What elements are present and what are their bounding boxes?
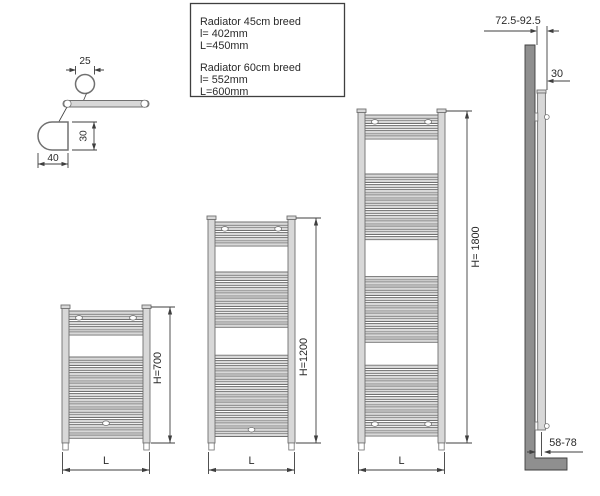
- arrowhead: [544, 450, 551, 454]
- tube: [365, 292, 439, 295]
- side-rail: [62, 308, 69, 443]
- tube: [365, 391, 439, 394]
- tube: [69, 373, 144, 376]
- height-dimension: [296, 218, 321, 443]
- tube: [365, 210, 439, 213]
- length-dimension-label: L: [398, 455, 404, 467]
- tube: [215, 392, 289, 395]
- bracket-knob-top: [544, 115, 549, 120]
- tube: [365, 329, 439, 332]
- tube: [365, 115, 439, 118]
- tube: [365, 313, 439, 316]
- tube: [365, 370, 439, 373]
- tube: [365, 190, 439, 193]
- tube: [69, 311, 144, 314]
- tube: [215, 412, 289, 415]
- mount-hole: [425, 422, 432, 427]
- height-dimension-label: H=700: [152, 352, 164, 384]
- side-tube: [538, 93, 546, 430]
- tube: [365, 136, 439, 139]
- tube: [365, 297, 439, 300]
- arrowhead: [531, 29, 538, 33]
- tube-diameter-label: 25: [79, 56, 91, 67]
- leg: [359, 443, 364, 450]
- bottom-offset-label: 58-78: [549, 437, 577, 449]
- rail-cap: [207, 216, 216, 220]
- tube: [365, 407, 439, 410]
- arrowhead: [465, 436, 469, 444]
- leader-line: [84, 94, 87, 101]
- tube: [365, 131, 439, 134]
- tube: [215, 298, 289, 301]
- arrowhead: [92, 144, 96, 151]
- tube: [215, 277, 289, 280]
- tube: [365, 381, 439, 384]
- rail-cap: [142, 305, 151, 309]
- tube: [69, 404, 144, 407]
- spec-line-6: L=600mm: [200, 86, 248, 98]
- tube: [215, 366, 289, 369]
- arrowhead: [62, 162, 69, 166]
- tube: [365, 417, 439, 420]
- bracket-height-label: 30: [79, 130, 90, 142]
- tube: [365, 205, 439, 208]
- leader-line: [59, 107, 67, 122]
- tube: [69, 357, 144, 360]
- tube: [365, 200, 439, 203]
- mount-hole: [371, 120, 378, 125]
- tube: [365, 365, 439, 368]
- tube: [365, 287, 439, 290]
- tube: [365, 282, 439, 285]
- rail-cap: [437, 109, 446, 113]
- bracket-depth-label: 40: [47, 153, 59, 164]
- tube: [69, 367, 144, 370]
- tube: [69, 383, 144, 386]
- bar-end-cap: [141, 100, 148, 107]
- drawing-canvas: Radiator 45cm breed l= 402mm L=450mm Rad…: [0, 0, 600, 496]
- height-dimension: [446, 111, 472, 443]
- tube: [215, 293, 289, 296]
- arrowhead: [92, 122, 96, 129]
- rail-cap: [357, 109, 366, 113]
- tube: [215, 324, 289, 327]
- leg: [439, 443, 444, 450]
- top-offset-dimension: [484, 26, 559, 90]
- tube: [215, 402, 289, 405]
- tube: [215, 381, 289, 384]
- tube: [69, 327, 144, 330]
- tube: [215, 397, 289, 400]
- tube: [215, 319, 289, 322]
- tube: [69, 409, 144, 412]
- tube: [69, 378, 144, 381]
- tube: [365, 428, 439, 431]
- arrowhead: [547, 29, 554, 33]
- tube: [215, 238, 289, 241]
- spec-line-4: Radiator 60cm breed: [200, 62, 301, 74]
- tube: [365, 396, 439, 399]
- radiator-h700: H=700L: [61, 305, 175, 474]
- tube: [215, 376, 289, 379]
- mount-hole: [103, 421, 110, 426]
- front-view-radiators: H=700LH=1200LH= 1800L: [61, 109, 482, 474]
- rail-cap: [287, 216, 296, 220]
- tube: [365, 303, 439, 306]
- spec-line-1: Radiator 45cm breed: [200, 16, 301, 28]
- tube: [215, 232, 289, 235]
- tube: [365, 195, 439, 198]
- leg: [289, 443, 294, 450]
- arrowhead: [314, 218, 318, 226]
- rail-cap: [61, 305, 70, 309]
- arrowhead: [168, 307, 172, 315]
- tube: [69, 321, 144, 324]
- side-view: 72.5-92.5 30 58-78: [484, 15, 583, 470]
- spec-box: Radiator 45cm breed l= 402mm L=450mm Rad…: [191, 4, 345, 99]
- tube-section-circle: [76, 75, 95, 94]
- tube: [365, 308, 439, 311]
- top-offset-label: 72.5-92.5: [495, 15, 541, 27]
- tube: [365, 231, 439, 234]
- tube: [365, 125, 439, 128]
- tube: [215, 433, 289, 436]
- mount-hole: [248, 427, 255, 432]
- mount-hole: [76, 316, 83, 321]
- arrowhead: [287, 468, 295, 472]
- tube: [215, 288, 289, 291]
- bar-end-cap: [64, 100, 71, 107]
- tube: [215, 371, 289, 374]
- length-dimension-label: L: [248, 455, 254, 467]
- radiator-technical-drawing: Radiator 45cm breed l= 402mm L=450mm Rad…: [0, 0, 600, 496]
- wall-and-floor: [525, 45, 567, 470]
- tube: [215, 243, 289, 246]
- tube: [69, 430, 144, 433]
- radiator-h1200: H=1200L: [207, 216, 321, 474]
- tube: [215, 308, 289, 311]
- arrowhead: [168, 436, 172, 444]
- tube: [365, 433, 439, 436]
- tube: [365, 184, 439, 187]
- tube: [365, 174, 439, 177]
- tube: [215, 386, 289, 389]
- tube: [365, 318, 439, 321]
- mount-hole: [275, 227, 282, 232]
- leg: [63, 443, 68, 450]
- tube: [69, 362, 144, 365]
- tube: [365, 179, 439, 182]
- tube: [365, 386, 439, 389]
- towel-bar: [63, 101, 149, 108]
- wall-bracket-top: [535, 113, 538, 121]
- mount-hole: [130, 316, 137, 321]
- tube: [69, 435, 144, 438]
- height-dimension-label: H= 1800: [470, 226, 482, 267]
- side-rail: [208, 219, 215, 443]
- tube: [365, 412, 439, 415]
- tube: [215, 282, 289, 285]
- tube: [365, 323, 439, 326]
- tube: [215, 360, 289, 363]
- tube: [365, 236, 439, 239]
- arrowhead: [314, 436, 318, 444]
- mount-hole: [425, 120, 432, 125]
- side-rail: [438, 112, 445, 443]
- tube: [215, 272, 289, 275]
- arrowhead: [142, 468, 150, 472]
- tube: [215, 303, 289, 306]
- tube: [365, 334, 439, 337]
- arrowhead: [63, 468, 71, 472]
- side-rail: [143, 308, 150, 443]
- tube: [69, 414, 144, 417]
- tube: [215, 407, 289, 410]
- leg: [209, 443, 214, 450]
- arrowhead: [359, 468, 367, 472]
- arrowhead: [437, 468, 445, 472]
- tube: [69, 393, 144, 396]
- tube: [365, 376, 439, 379]
- arrowhead: [465, 111, 469, 119]
- tube-depth-label: 30: [551, 68, 563, 80]
- wall-bracket-bottom: [535, 422, 538, 430]
- spec-line-3: L=450mm: [200, 40, 248, 52]
- side-rail: [358, 112, 365, 443]
- tube: [69, 388, 144, 391]
- bracket-profile: [38, 122, 68, 150]
- bracket-knob-bottom: [544, 424, 549, 429]
- spec-line-5: l= 552mm: [200, 74, 248, 86]
- spec-line-2: l= 402mm: [200, 28, 248, 40]
- mount-hole: [371, 422, 378, 427]
- tube: [365, 402, 439, 405]
- side-rail: [288, 219, 295, 443]
- height-dimension-label: H=1200: [298, 338, 310, 376]
- radiator-h1800: H= 1800L: [357, 109, 482, 474]
- tube: [365, 216, 439, 219]
- tube: [365, 221, 439, 224]
- tube: [215, 355, 289, 358]
- arrowhead: [38, 162, 45, 166]
- arrowhead: [70, 68, 77, 72]
- arrowhead: [209, 468, 217, 472]
- arrowhead: [94, 68, 101, 72]
- detail-view: 25 30 40: [38, 56, 149, 168]
- tube: [215, 314, 289, 317]
- tube: [365, 277, 439, 280]
- leg: [144, 443, 149, 450]
- length-dimension-label: L: [103, 455, 109, 467]
- tube: [215, 423, 289, 426]
- tube: [365, 339, 439, 342]
- tube: [365, 226, 439, 229]
- mount-hole: [221, 227, 228, 232]
- tube: [215, 418, 289, 421]
- tube: [215, 222, 289, 225]
- tube: [69, 332, 144, 335]
- tube: [69, 399, 144, 402]
